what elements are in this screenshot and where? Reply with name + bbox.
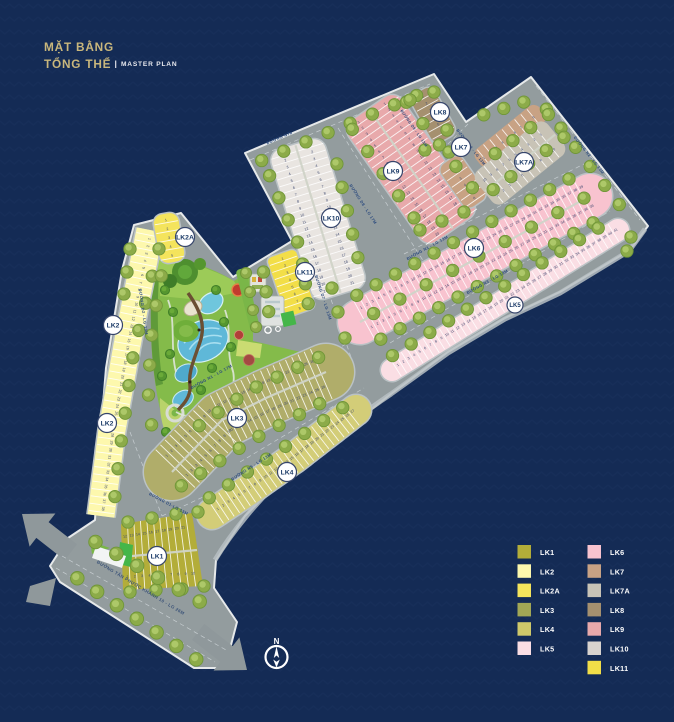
svg-text:38: 38 <box>101 506 105 510</box>
svg-text:N: N <box>274 637 280 646</box>
svg-text:12: 12 <box>131 316 136 321</box>
svg-text:10: 10 <box>191 571 195 575</box>
svg-text:36: 36 <box>103 492 107 496</box>
svg-text:MASTER PLAN: MASTER PLAN <box>121 61 177 68</box>
svg-text:17: 17 <box>155 529 160 534</box>
svg-text:15: 15 <box>142 531 147 536</box>
svg-text:LK2A: LK2A <box>176 234 194 241</box>
svg-text:12: 12 <box>123 534 128 539</box>
svg-text:LK8: LK8 <box>434 109 447 116</box>
svg-text:24: 24 <box>115 404 120 409</box>
svg-text:LK4: LK4 <box>540 625 554 634</box>
svg-text:LK9: LK9 <box>610 625 624 634</box>
svg-text:LK5: LK5 <box>540 645 554 654</box>
svg-text:2: 2 <box>134 574 136 578</box>
svg-text:35: 35 <box>104 484 108 488</box>
svg-text:LK3: LK3 <box>540 606 554 615</box>
svg-text:LK11: LK11 <box>610 664 628 673</box>
svg-text:3: 3 <box>141 574 143 578</box>
svg-text:18: 18 <box>123 360 128 365</box>
svg-text:14: 14 <box>136 532 141 537</box>
svg-text:15: 15 <box>127 338 132 343</box>
svg-text:13: 13 <box>129 533 134 538</box>
svg-text:34: 34 <box>104 477 108 481</box>
svg-text:|: | <box>115 59 117 69</box>
svg-text:LK8: LK8 <box>610 606 624 615</box>
svg-text:14: 14 <box>128 331 133 336</box>
svg-text:21: 21 <box>181 525 186 530</box>
svg-text:16: 16 <box>125 345 130 350</box>
svg-text:LK6: LK6 <box>468 245 481 252</box>
svg-text:4: 4 <box>148 574 150 578</box>
svg-text:33: 33 <box>105 470 109 474</box>
svg-text:30: 30 <box>108 448 112 452</box>
svg-text:19: 19 <box>121 367 126 372</box>
svg-text:7: 7 <box>170 573 172 577</box>
svg-text:23: 23 <box>116 396 121 401</box>
svg-text:29: 29 <box>109 440 113 444</box>
svg-text:LK7: LK7 <box>455 144 468 151</box>
svg-text:LK5: LK5 <box>509 303 521 309</box>
svg-text:LK10: LK10 <box>323 215 340 222</box>
svg-text:LK2A: LK2A <box>540 587 560 596</box>
svg-text:31: 31 <box>107 455 111 459</box>
svg-text:10: 10 <box>134 302 139 307</box>
svg-text:19: 19 <box>168 527 173 532</box>
svg-text:11: 11 <box>132 309 137 313</box>
svg-text:MẶT BẰNG: MẶT BẰNG <box>44 40 114 54</box>
svg-text:LK7A: LK7A <box>515 159 533 166</box>
svg-text:LK11: LK11 <box>297 269 313 276</box>
svg-text:LK4: LK4 <box>281 469 294 476</box>
svg-text:16: 16 <box>149 530 154 535</box>
svg-text:LK1: LK1 <box>151 553 164 560</box>
svg-text:LK2: LK2 <box>107 322 120 329</box>
svg-text:8: 8 <box>177 572 179 576</box>
svg-text:LK3: LK3 <box>231 415 244 422</box>
svg-text:20: 20 <box>120 375 125 380</box>
svg-text:LK9: LK9 <box>387 168 400 175</box>
svg-text:9: 9 <box>185 572 187 576</box>
svg-text:LK2: LK2 <box>540 567 554 576</box>
svg-text:32: 32 <box>106 462 110 466</box>
svg-text:25: 25 <box>114 411 119 416</box>
svg-text:37: 37 <box>102 499 106 503</box>
svg-text:20: 20 <box>175 526 180 531</box>
svg-text:LK6: LK6 <box>610 548 624 557</box>
svg-text:22: 22 <box>118 389 123 394</box>
svg-text:LK1: LK1 <box>540 548 554 557</box>
svg-text:LK7: LK7 <box>610 567 624 576</box>
svg-text:28: 28 <box>110 433 114 437</box>
svg-text:18: 18 <box>162 528 167 533</box>
svg-text:TỔNG THỂ: TỔNG THỂ <box>44 57 111 71</box>
svg-text:LK7A: LK7A <box>610 587 630 596</box>
svg-text:LK10: LK10 <box>610 645 629 654</box>
svg-text:LK2: LK2 <box>101 420 114 427</box>
